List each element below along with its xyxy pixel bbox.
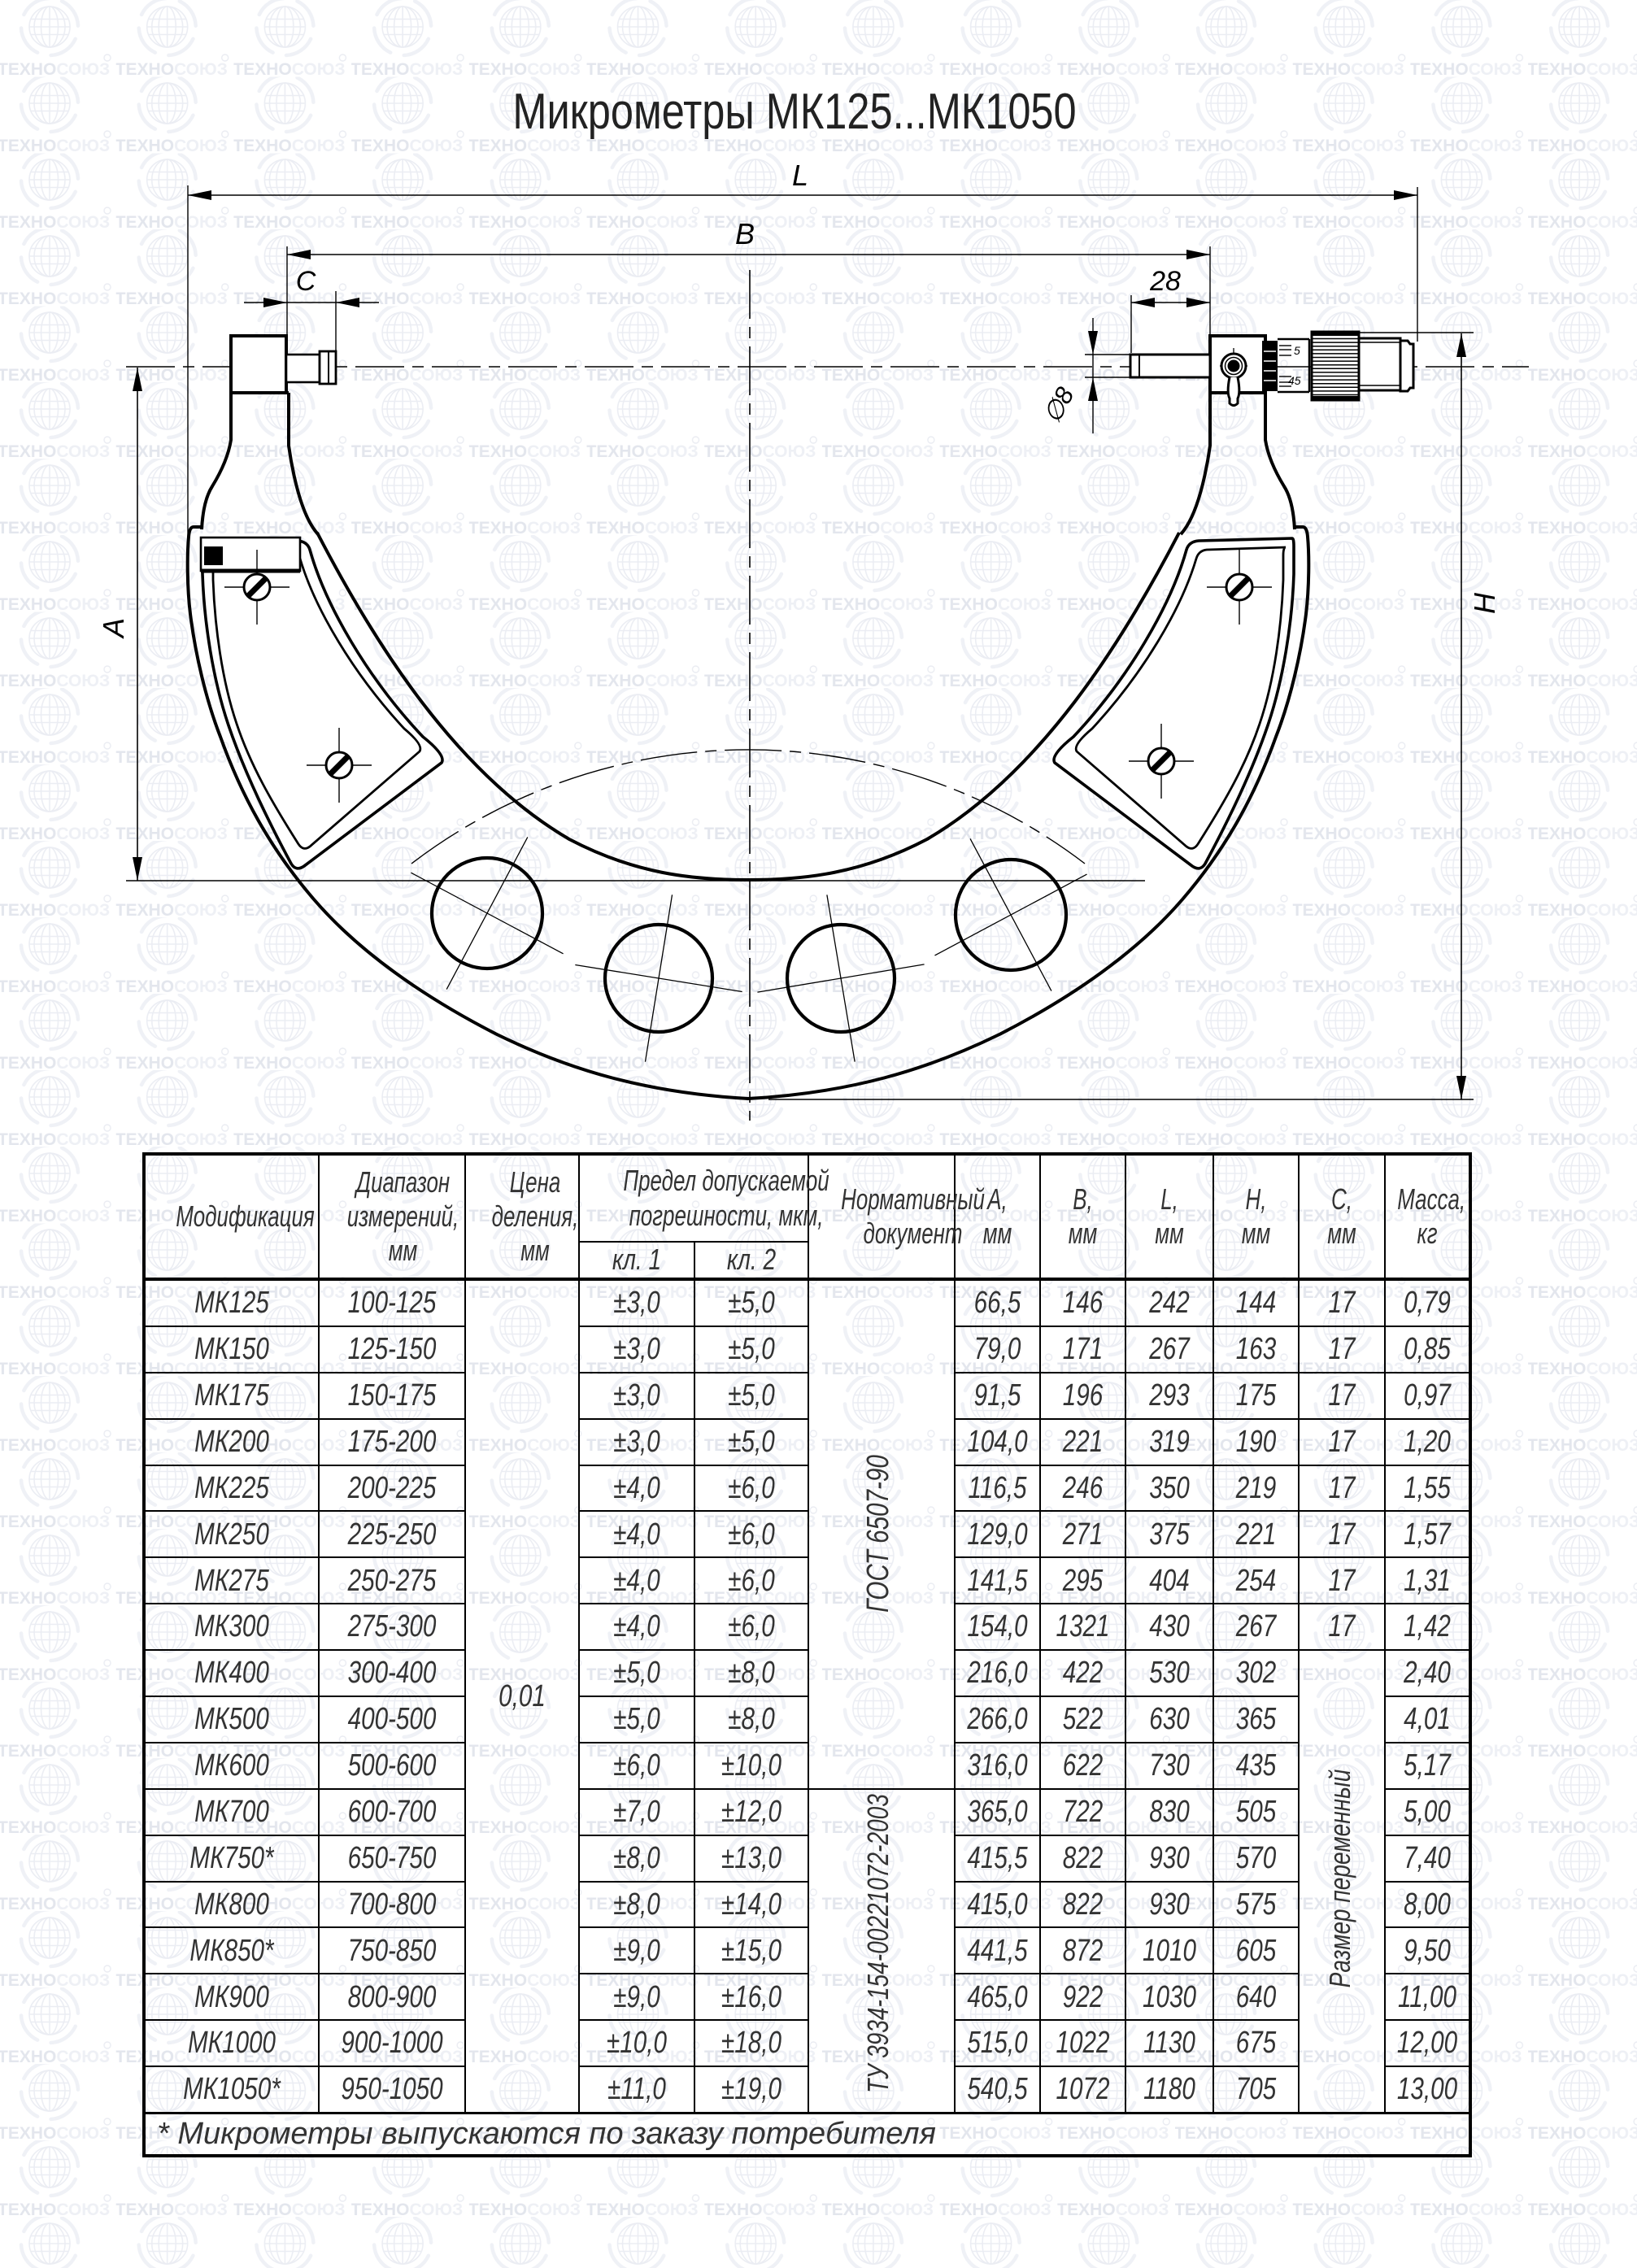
svg-text:A: A <box>97 618 130 639</box>
svg-text:L: L <box>792 159 808 192</box>
svg-text:H: H <box>1468 592 1501 614</box>
svg-text:C: C <box>296 266 316 297</box>
svg-text:B: B <box>735 217 755 250</box>
svg-text:45: 45 <box>1288 374 1301 387</box>
svg-text:28: 28 <box>1149 266 1181 297</box>
svg-text:5: 5 <box>1294 344 1300 357</box>
